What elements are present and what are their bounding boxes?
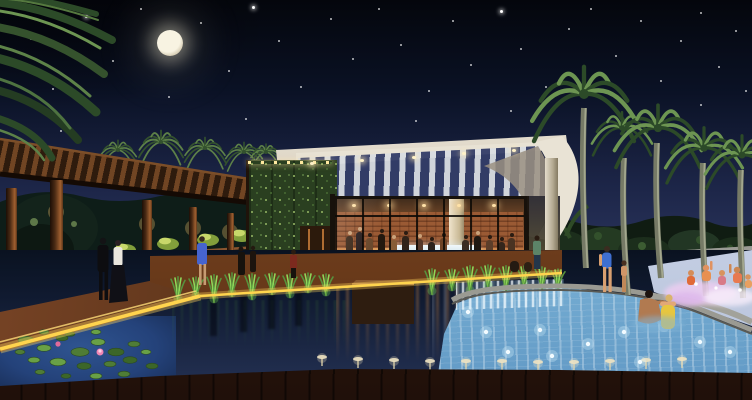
star [545,86,547,88]
star [510,110,512,112]
star [568,28,570,30]
star [615,55,617,57]
star [168,96,170,98]
star [252,6,255,9]
star [112,60,114,62]
downlight [412,156,416,159]
star [352,58,354,60]
downlight [310,162,314,165]
grass-reflection [172,300,352,348]
star [590,8,592,10]
scene-night-clubhouse [0,0,752,400]
star [200,22,202,24]
star [428,90,430,92]
star [470,64,472,66]
star [400,44,402,46]
downlight [462,152,466,155]
star [735,30,737,32]
star [640,20,642,22]
green-wall-uplights [248,161,332,164]
star [85,15,88,18]
star [330,18,332,20]
star [140,8,142,10]
star [278,40,280,42]
star [228,70,230,72]
star [52,88,54,90]
star [700,12,702,14]
star [60,130,62,132]
star [745,90,747,92]
downlight [360,159,364,162]
moon [157,30,183,56]
star [245,118,247,120]
star [452,20,454,22]
star [500,10,503,13]
star [378,8,380,10]
star [520,48,522,50]
star [415,120,417,122]
star [700,104,702,106]
star [300,86,302,88]
star [30,38,32,40]
star [718,66,720,68]
star [680,40,682,42]
downlight [512,149,516,152]
star [660,80,662,82]
